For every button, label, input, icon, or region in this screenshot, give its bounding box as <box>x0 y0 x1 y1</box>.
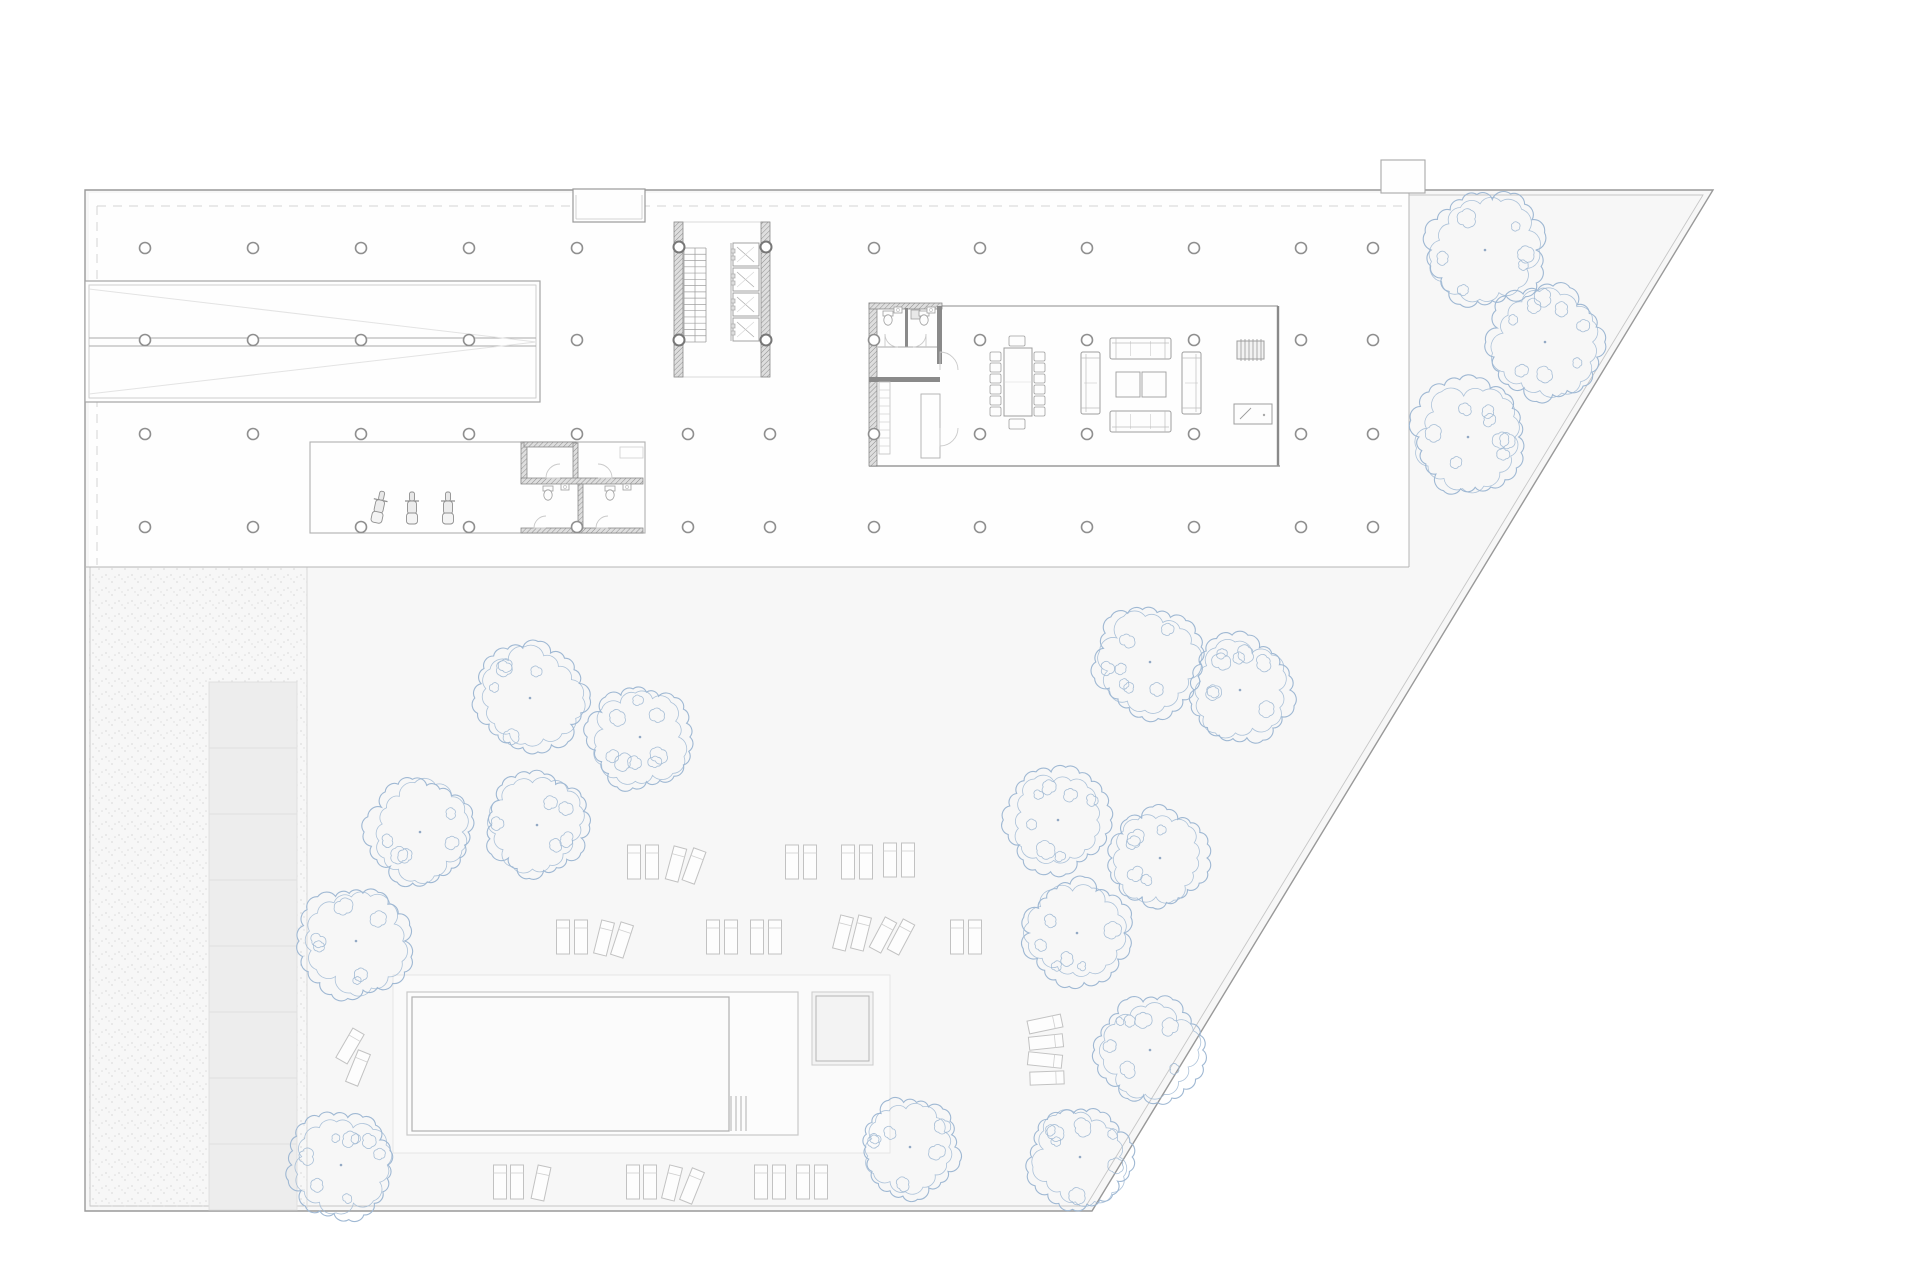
sofa <box>1110 338 1171 359</box>
column <box>869 429 880 440</box>
column <box>464 243 475 254</box>
column <box>975 429 986 440</box>
elevator-cabin <box>731 318 759 341</box>
coffee-table <box>1142 372 1166 397</box>
column <box>248 243 259 254</box>
toilet-fixture <box>883 311 893 325</box>
sunbed <box>773 1165 786 1199</box>
column <box>1296 429 1307 440</box>
column <box>1296 243 1307 254</box>
sunbed <box>627 1165 640 1199</box>
sunbed <box>644 1165 657 1199</box>
chair <box>990 374 1001 383</box>
column <box>140 243 151 254</box>
chair <box>990 363 1001 372</box>
chair <box>1034 374 1045 383</box>
column <box>1368 335 1379 346</box>
shelf <box>1237 339 1264 361</box>
sunbed <box>902 843 915 877</box>
pool-water <box>412 997 729 1131</box>
column <box>248 429 259 440</box>
sunbed <box>494 1165 507 1199</box>
sunbed <box>815 1165 828 1199</box>
sunbed <box>707 920 720 954</box>
coffee-table <box>1116 372 1140 397</box>
chair <box>990 407 1001 416</box>
toilet-fixture <box>605 486 615 500</box>
sink-fixture <box>894 307 902 313</box>
desk <box>1234 404 1272 424</box>
sunbed <box>575 920 588 954</box>
chair <box>990 385 1001 394</box>
column <box>464 522 475 533</box>
sofa <box>1182 352 1201 414</box>
column <box>1082 243 1093 254</box>
column <box>1368 429 1379 440</box>
column <box>1296 522 1307 533</box>
pavilion <box>812 992 873 1065</box>
column <box>1368 243 1379 254</box>
core-column <box>674 335 685 346</box>
column <box>1189 335 1200 346</box>
floor-plan-page <box>0 0 1920 1280</box>
sofa <box>1081 352 1100 414</box>
landscape <box>89 567 307 1211</box>
core-column <box>674 242 685 253</box>
pool-terrace <box>393 975 890 1153</box>
column <box>869 335 880 346</box>
sofa <box>1110 411 1171 432</box>
sunbed <box>860 845 873 879</box>
chair <box>1034 407 1045 416</box>
sunbed <box>751 920 764 954</box>
chair <box>990 396 1001 405</box>
sink-fixture <box>927 307 935 313</box>
chair <box>1034 352 1045 361</box>
sink-fixture <box>623 484 631 490</box>
roof-bump <box>1381 160 1425 193</box>
sunbed <box>804 845 817 879</box>
column <box>572 522 583 533</box>
column <box>1189 243 1200 254</box>
elevator-cabin <box>731 293 759 316</box>
column <box>1082 429 1093 440</box>
column <box>765 429 776 440</box>
column <box>356 335 367 346</box>
chair <box>990 352 1001 361</box>
column <box>140 429 151 440</box>
column <box>1189 522 1200 533</box>
sunbed <box>725 920 738 954</box>
sunbed <box>511 1165 524 1199</box>
column <box>869 522 880 533</box>
column <box>683 429 694 440</box>
column <box>356 429 367 440</box>
column <box>1082 335 1093 346</box>
sunbed <box>1030 1071 1064 1085</box>
column <box>1082 522 1093 533</box>
garage-block <box>310 442 645 533</box>
sunbed <box>557 920 570 954</box>
sunbed <box>842 845 855 879</box>
column <box>140 335 151 346</box>
core-column <box>761 242 772 253</box>
elevator-cabin <box>731 268 759 291</box>
chair <box>1009 336 1025 346</box>
column <box>140 522 151 533</box>
entry-notch <box>573 189 645 222</box>
column <box>1296 335 1307 346</box>
column <box>356 243 367 254</box>
sunbed <box>969 920 982 954</box>
sunbed <box>884 843 897 877</box>
column <box>356 522 367 533</box>
column <box>1189 429 1200 440</box>
sunbed <box>786 845 799 879</box>
chair <box>1034 363 1045 372</box>
column <box>464 335 475 346</box>
sunbed <box>628 845 641 879</box>
column <box>572 243 583 254</box>
sunbed <box>769 920 782 954</box>
column <box>572 429 583 440</box>
column <box>248 522 259 533</box>
sunbed <box>797 1165 810 1199</box>
sunbed <box>646 845 659 879</box>
sunbed <box>951 920 964 954</box>
planter-steps-band <box>209 682 297 1210</box>
column <box>683 522 694 533</box>
elevator-cabin <box>731 243 759 266</box>
column <box>248 335 259 346</box>
floor-plan-svg <box>0 0 1920 1280</box>
toilet-fixture <box>543 486 553 500</box>
chair <box>1034 385 1045 394</box>
sunbed <box>755 1165 768 1199</box>
column <box>1368 522 1379 533</box>
column <box>975 522 986 533</box>
core-column <box>761 335 772 346</box>
column <box>975 335 986 346</box>
column <box>765 522 776 533</box>
chair <box>1034 396 1045 405</box>
chair <box>1009 419 1025 429</box>
column <box>975 243 986 254</box>
column <box>572 335 583 346</box>
column <box>869 243 880 254</box>
sink-fixture <box>561 484 569 490</box>
column <box>464 429 475 440</box>
